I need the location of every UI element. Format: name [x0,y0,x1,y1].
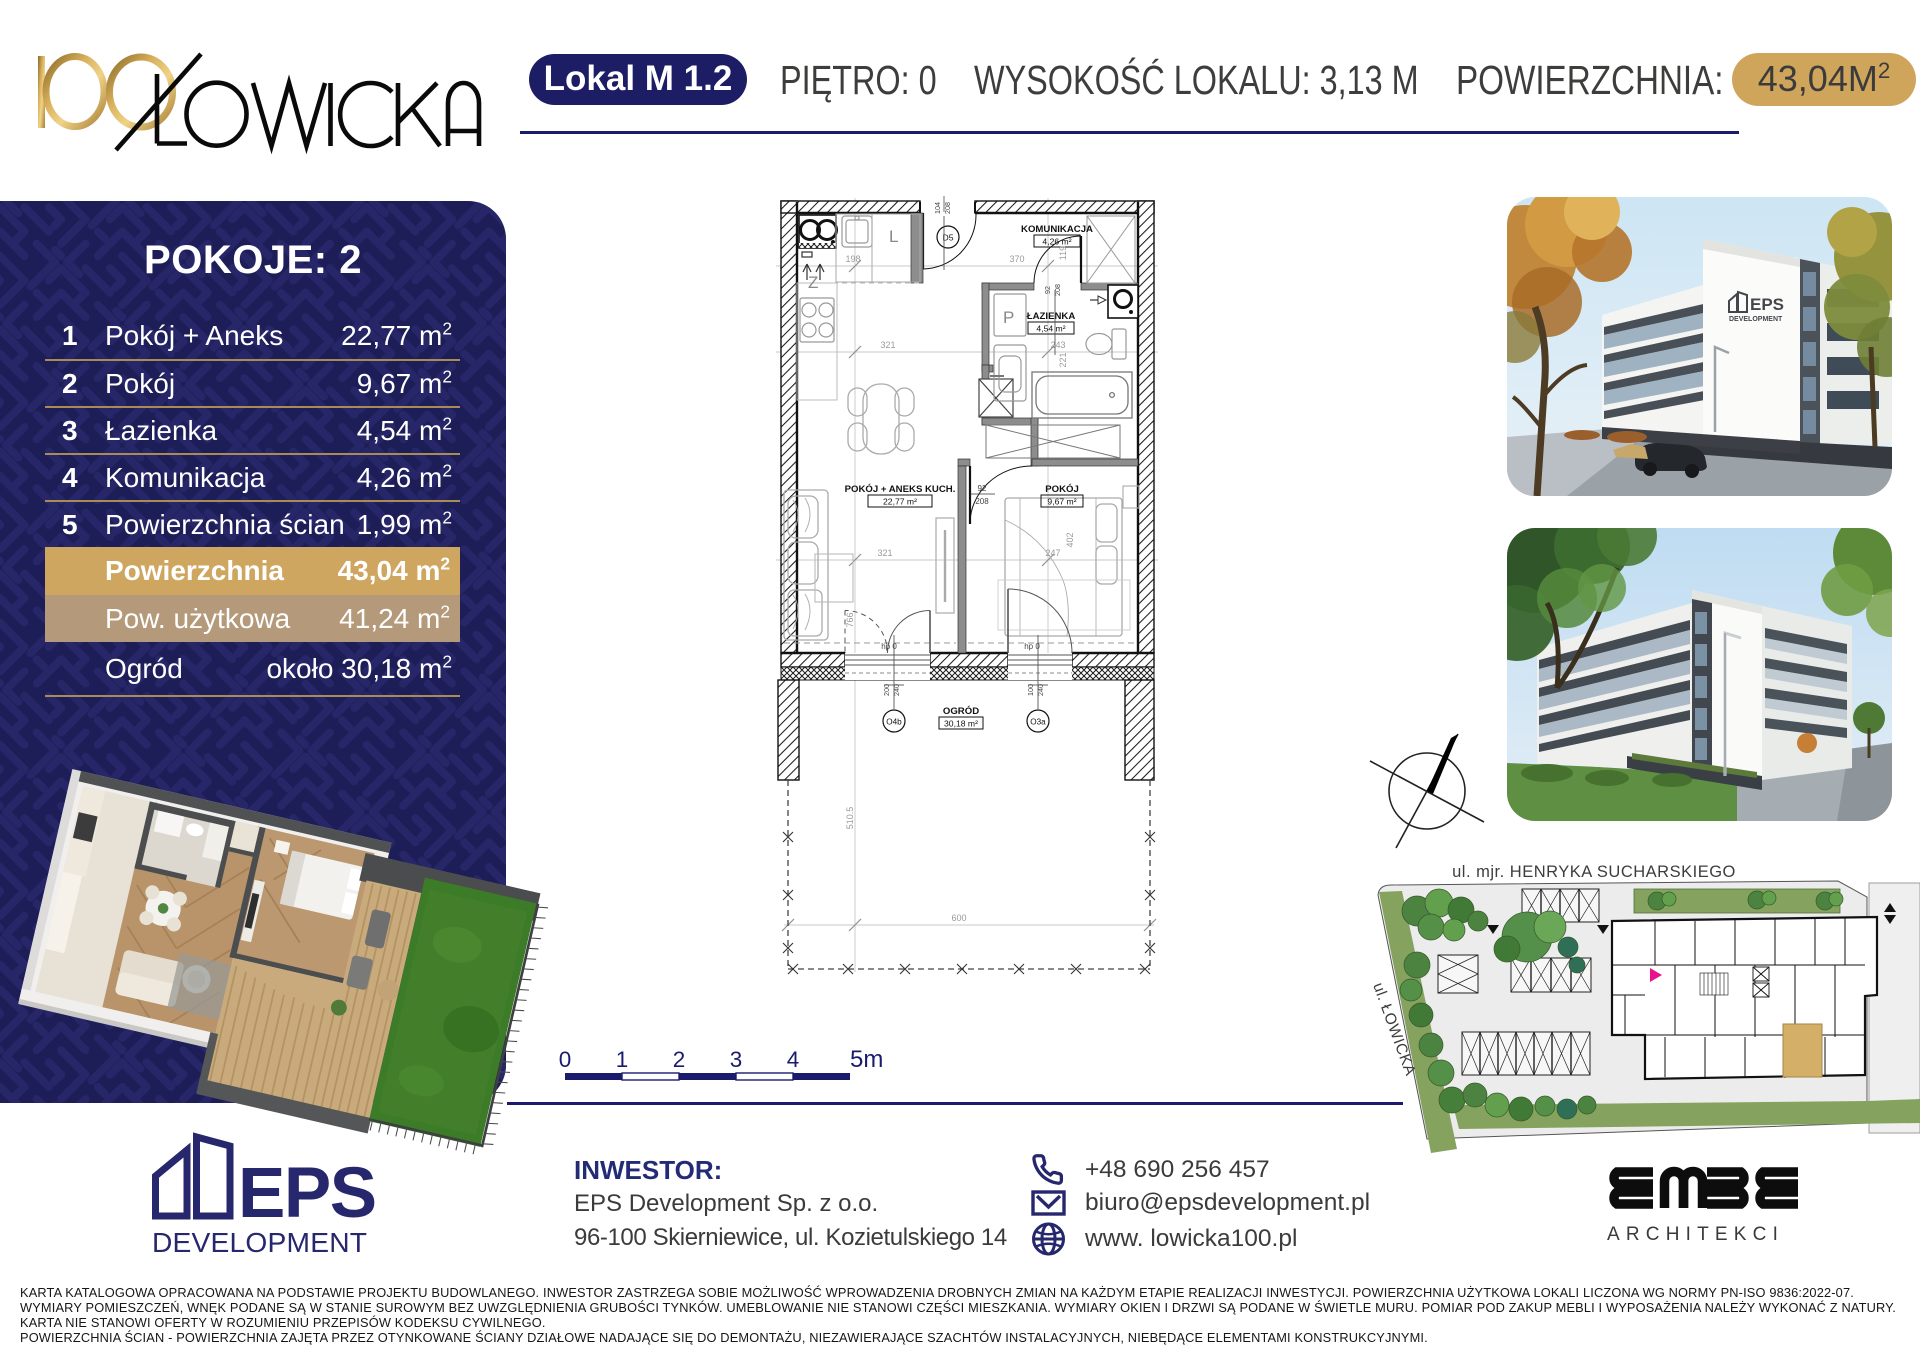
svg-text:OGRÓD: OGRÓD [943,705,979,717]
svg-text:208: 208 [975,497,989,506]
svg-text:119: 119 [1058,246,1068,260]
svg-text:O4b: O4b [886,718,902,727]
svg-text:247: 247 [1045,548,1060,558]
svg-text:104: 104 [933,202,942,214]
svg-text:4,54 m²: 4,54 m² [1036,324,1065,334]
svg-text:9,67 m²: 9,67 m² [1047,497,1076,507]
svg-text:3: 3 [730,1047,743,1072]
svg-text:510.5: 510.5 [845,807,855,830]
svg-text:DEVELOPMENT: DEVELOPMENT [152,1226,367,1258]
svg-text:www. lowicka100.pl: www. lowicka100.pl [1084,1225,1297,1252]
svg-text:92: 92 [1043,286,1052,294]
svg-text:766: 766 [845,612,855,627]
svg-text:221: 221 [1058,352,1068,367]
svg-text:5m: 5m [850,1046,883,1073]
svg-text:240: 240 [892,684,901,696]
svg-text:POKÓJ: POKÓJ [1045,483,1079,495]
svg-text:240: 240 [1036,684,1045,696]
svg-text:L: L [889,227,898,246]
svg-text:4,26 m²: 4,26 m² [1042,237,1071,247]
svg-text:Z: Z [808,273,818,292]
svg-text:POKÓJ + ANEKS KUCH.: POKÓJ + ANEKS KUCH. [845,483,956,495]
svg-text:O3a: O3a [1030,718,1046,727]
svg-text:370: 370 [1009,254,1024,264]
svg-text:92: 92 [978,484,987,493]
svg-text:1: 1 [616,1047,629,1072]
svg-text:402: 402 [1065,532,1075,547]
svg-text:biuro@epsdevelopment.pl: biuro@epsdevelopment.pl [1085,1189,1370,1216]
svg-text:30,18 m²: 30,18 m² [944,719,978,729]
svg-text:hp 0: hp 0 [881,642,897,651]
svg-text:ARCHITEKCI: ARCHITEKCI [1607,1224,1784,1245]
svg-text:321: 321 [877,548,892,558]
svg-text:EPS: EPS [238,1154,376,1233]
svg-text:243: 243 [1050,340,1065,350]
svg-text:P: P [1003,308,1014,327]
svg-text:198: 198 [845,254,860,264]
svg-text:321: 321 [880,340,895,350]
svg-text:ŁAZIENKA: ŁAZIENKA [1027,311,1076,322]
svg-text:100: 100 [1026,684,1035,696]
svg-text:ul. mjr. HENRYKA SUCHARSKIEGO: ul. mjr. HENRYKA SUCHARSKIEGO [1452,863,1736,881]
svg-text:600: 600 [951,913,966,923]
svg-text:2: 2 [673,1047,686,1072]
svg-text:DEVELOPMENT: DEVELOPMENT [1729,316,1783,323]
svg-text:EPS: EPS [1750,295,1784,314]
svg-text:4: 4 [787,1047,800,1072]
svg-text:KOMUNIKACJA: KOMUNIKACJA [1021,224,1093,235]
svg-text:22,77 m²: 22,77 m² [883,497,917,507]
svg-text:200: 200 [882,684,891,696]
svg-text:+48 690 256 457: +48 690 256 457 [1085,1156,1270,1183]
svg-text:208: 208 [1053,284,1062,296]
